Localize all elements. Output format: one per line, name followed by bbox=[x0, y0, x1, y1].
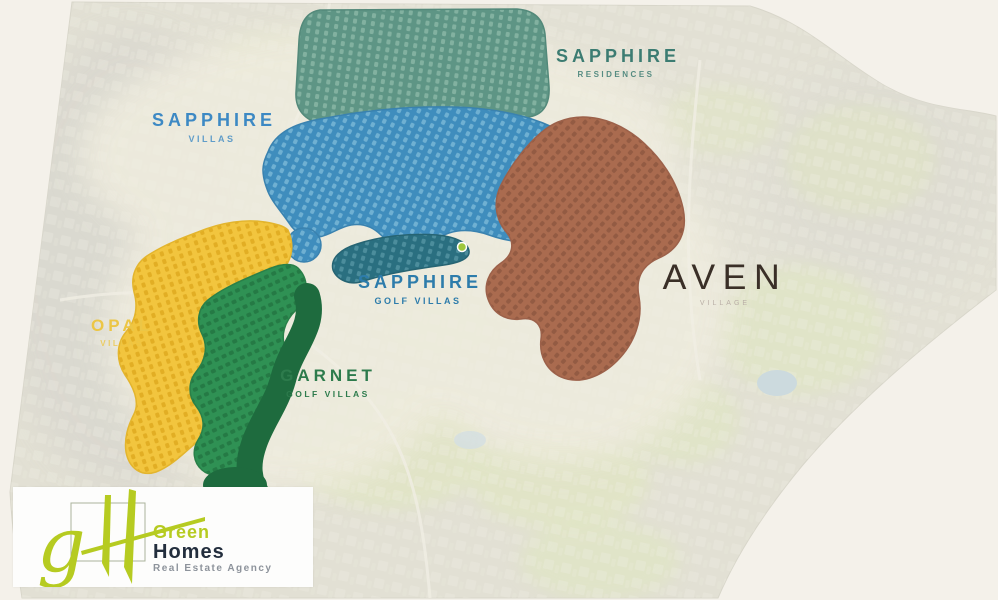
master-plan-screenshot: SAPPHIRE RESIDENCES SAPPHIRE VILLAS SAPP… bbox=[0, 0, 998, 600]
logo-name-line2: Homes bbox=[153, 542, 272, 562]
monogram-g: g bbox=[37, 500, 86, 587]
location-marker-dot bbox=[458, 243, 467, 252]
logo-tagline: Real Estate Agency bbox=[153, 564, 272, 574]
monogram-h-left-stem bbox=[102, 495, 111, 577]
logo-name-line1: Green bbox=[153, 523, 272, 541]
green-homes-wordmark: Green Homes Real Estate Agency bbox=[153, 523, 272, 574]
green-homes-logo: g Green Homes Real Estate Agency bbox=[13, 487, 313, 587]
